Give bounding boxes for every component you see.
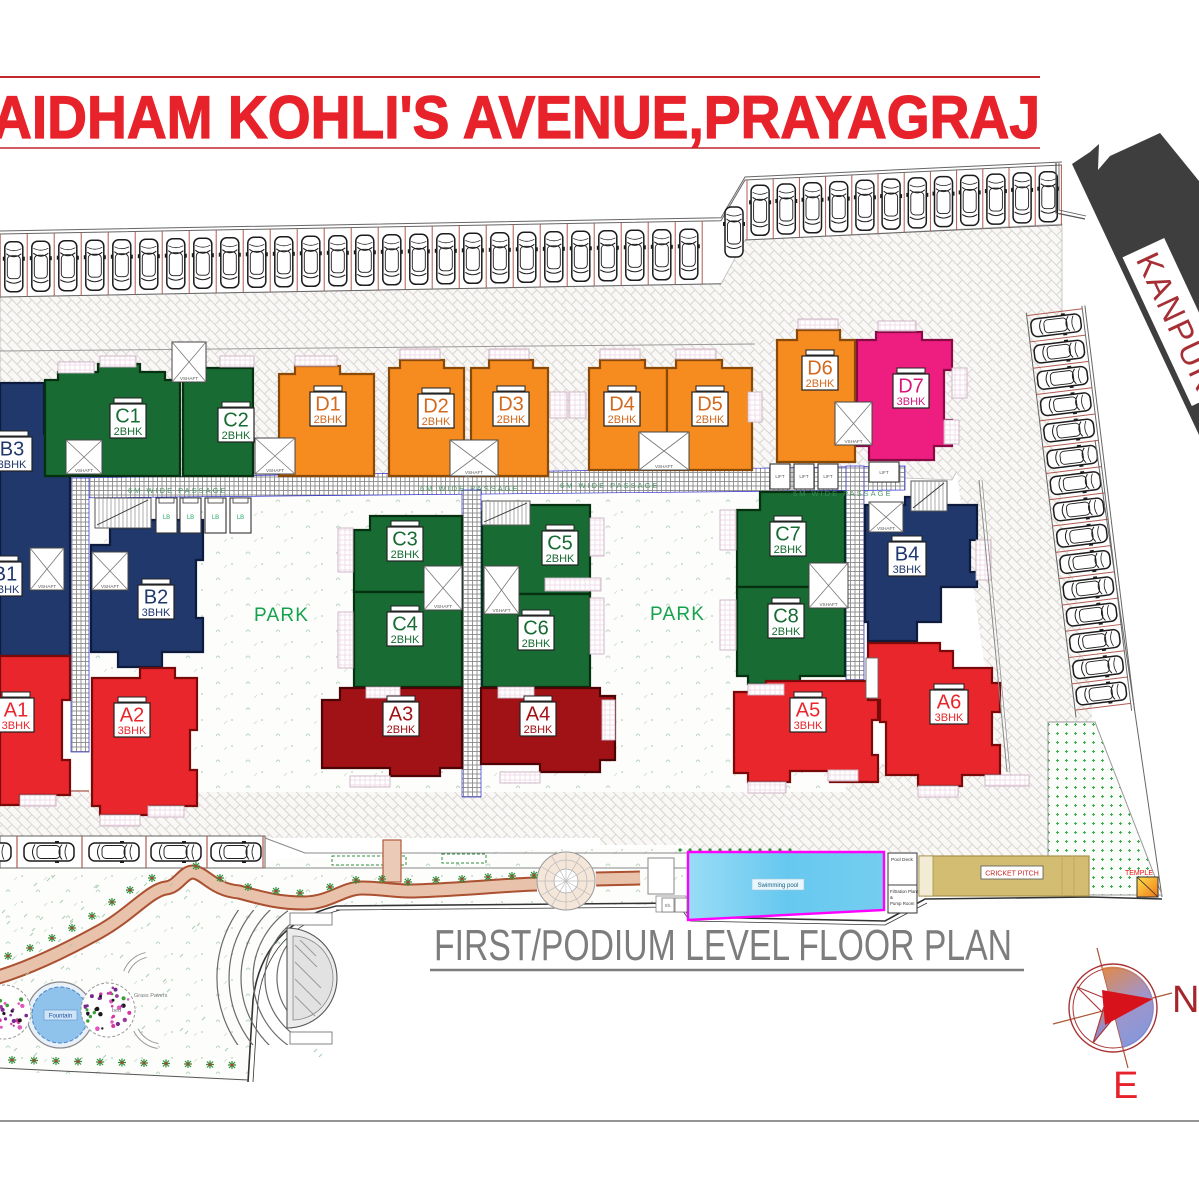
svg-text:LIFT: LIFT	[823, 474, 833, 479]
svg-text:Sh.: Sh.	[665, 903, 672, 908]
svg-text:VSHAFT: VSHAFT	[38, 584, 56, 589]
svg-text:C7: C7	[775, 524, 801, 546]
svg-text:2BHK: 2BHK	[806, 378, 835, 390]
svg-text:3BHK: 3BHK	[0, 459, 27, 471]
svg-text:2BHK: 2BHK	[696, 414, 725, 426]
svg-text:LIFT: LIFT	[775, 474, 785, 479]
svg-text:VSHAFT: VSHAFT	[75, 468, 93, 473]
svg-text:3BHK: 3BHK	[893, 564, 922, 576]
svg-text:LB: LB	[187, 515, 194, 521]
svg-text:VSHAFT: VSHAFT	[877, 526, 895, 531]
svg-text:2BHK: 2BHK	[522, 638, 551, 650]
svg-text:D7: D7	[898, 376, 924, 398]
svg-text:VSHAFT: VSHAFT	[492, 608, 510, 613]
svg-text:AIDHAM KOHLI'S AVENUE,PRAYAGRA: AIDHAM KOHLI'S AVENUE,PRAYAGRAJ	[0, 84, 1040, 151]
svg-text:2BHK: 2BHK	[422, 416, 451, 428]
svg-text:VSHAFT: VSHAFT	[101, 584, 119, 589]
svg-text:Fountain: Fountain	[49, 1014, 72, 1020]
svg-text:B2: B2	[144, 587, 168, 609]
svg-text:C5: C5	[547, 533, 573, 555]
svg-text:VSHAFT: VSHAFT	[655, 464, 673, 469]
svg-text:D6: D6	[807, 358, 833, 380]
svg-text:A2: A2	[120, 705, 144, 727]
svg-text:LB: LB	[212, 515, 219, 521]
svg-text:6M WIDE PASSAGE: 6M WIDE PASSAGE	[128, 486, 227, 495]
svg-text:A6: A6	[937, 692, 961, 714]
svg-text:Pool Deck: Pool Deck	[891, 857, 913, 863]
svg-text:3BHK: 3BHK	[897, 396, 926, 408]
svg-text:3BHK: 3BHK	[118, 725, 147, 737]
svg-text:C4: C4	[392, 614, 418, 636]
svg-text:N: N	[1172, 979, 1199, 1021]
svg-text:B3: B3	[0, 439, 24, 461]
svg-text:VSHAFT: VSHAFT	[266, 468, 284, 473]
svg-text:D1: D1	[315, 394, 341, 416]
svg-text:VSHAFT: VSHAFT	[819, 602, 837, 607]
svg-text:D3: D3	[498, 394, 524, 416]
svg-text:D4: D4	[609, 394, 635, 416]
svg-text:C2: C2	[223, 410, 249, 432]
svg-text:2BHK: 2BHK	[391, 634, 420, 646]
svg-text:FIRST/PODIUM LEVEL FLOOR PLAN: FIRST/PODIUM LEVEL FLOOR PLAN	[434, 921, 1012, 970]
svg-text:2BHK: 2BHK	[114, 426, 143, 438]
svg-text:VSHAFT: VSHAFT	[844, 439, 862, 444]
svg-text:A4: A4	[526, 704, 550, 726]
svg-text:Pump Room: Pump Room	[890, 901, 915, 906]
svg-text:2BHK: 2BHK	[391, 549, 420, 561]
svg-text:LIFT: LIFT	[879, 470, 889, 475]
svg-text:VSHAFT: VSHAFT	[434, 604, 452, 609]
svg-text:A1: A1	[4, 700, 28, 722]
svg-text:A5: A5	[796, 700, 820, 722]
svg-text:PARK: PARK	[650, 604, 705, 625]
svg-text:C6: C6	[523, 618, 549, 640]
svg-text:E: E	[1113, 1065, 1138, 1107]
svg-text:Swimming pool: Swimming pool	[758, 883, 799, 889]
svg-text:3BHK: 3BHK	[0, 584, 20, 596]
svg-text:3BHK: 3BHK	[935, 712, 964, 724]
svg-text:VSHAFT: VSHAFT	[465, 470, 483, 475]
svg-text:3BHK: 3BHK	[142, 607, 171, 619]
svg-text:2BHK: 2BHK	[546, 553, 575, 565]
svg-text:2BHK: 2BHK	[772, 626, 801, 638]
svg-text:CRICKET PITCH: CRICKET PITCH	[985, 871, 1039, 878]
svg-text:2BHK: 2BHK	[774, 544, 803, 556]
svg-text:C1: C1	[115, 406, 141, 428]
svg-text:6M WIDE PASSAGE: 6M WIDE PASSAGE	[560, 481, 659, 490]
svg-text:2BHK: 2BHK	[387, 724, 416, 736]
svg-text:LB: LB	[163, 515, 170, 521]
svg-text:LB: LB	[237, 515, 244, 521]
svg-text:TEMPLE: TEMPLE	[1125, 870, 1153, 877]
svg-text:A3: A3	[389, 704, 413, 726]
svg-text:2BHK: 2BHK	[524, 724, 553, 736]
svg-text:3BHK: 3BHK	[2, 720, 31, 732]
svg-text:2BHK: 2BHK	[497, 414, 526, 426]
svg-text:2BHK: 2BHK	[608, 414, 637, 426]
svg-text:&: &	[890, 895, 893, 900]
svg-text:B1: B1	[0, 564, 17, 586]
svg-text:Filtration Plant: Filtration Plant	[890, 889, 919, 894]
svg-text:PARK: PARK	[254, 605, 309, 626]
svg-text:D2: D2	[423, 396, 449, 418]
svg-text:3BHK: 3BHK	[794, 720, 823, 732]
svg-text:VSHAFT: VSHAFT	[180, 376, 198, 381]
svg-text:2BHK: 2BHK	[314, 414, 343, 426]
svg-text:bed: bed	[112, 1008, 121, 1014]
svg-text:LIFT: LIFT	[799, 474, 809, 479]
svg-text:6M WIDE PASSAGE: 6M WIDE PASSAGE	[793, 489, 892, 498]
svg-text:C3: C3	[392, 529, 418, 551]
svg-text:C8: C8	[773, 606, 799, 628]
svg-text:2BHK: 2BHK	[222, 430, 251, 442]
svg-text:D5: D5	[697, 394, 723, 416]
svg-text:6M WIDE PASSAGE: 6M WIDE PASSAGE	[420, 484, 519, 493]
svg-text:B4: B4	[895, 544, 919, 566]
